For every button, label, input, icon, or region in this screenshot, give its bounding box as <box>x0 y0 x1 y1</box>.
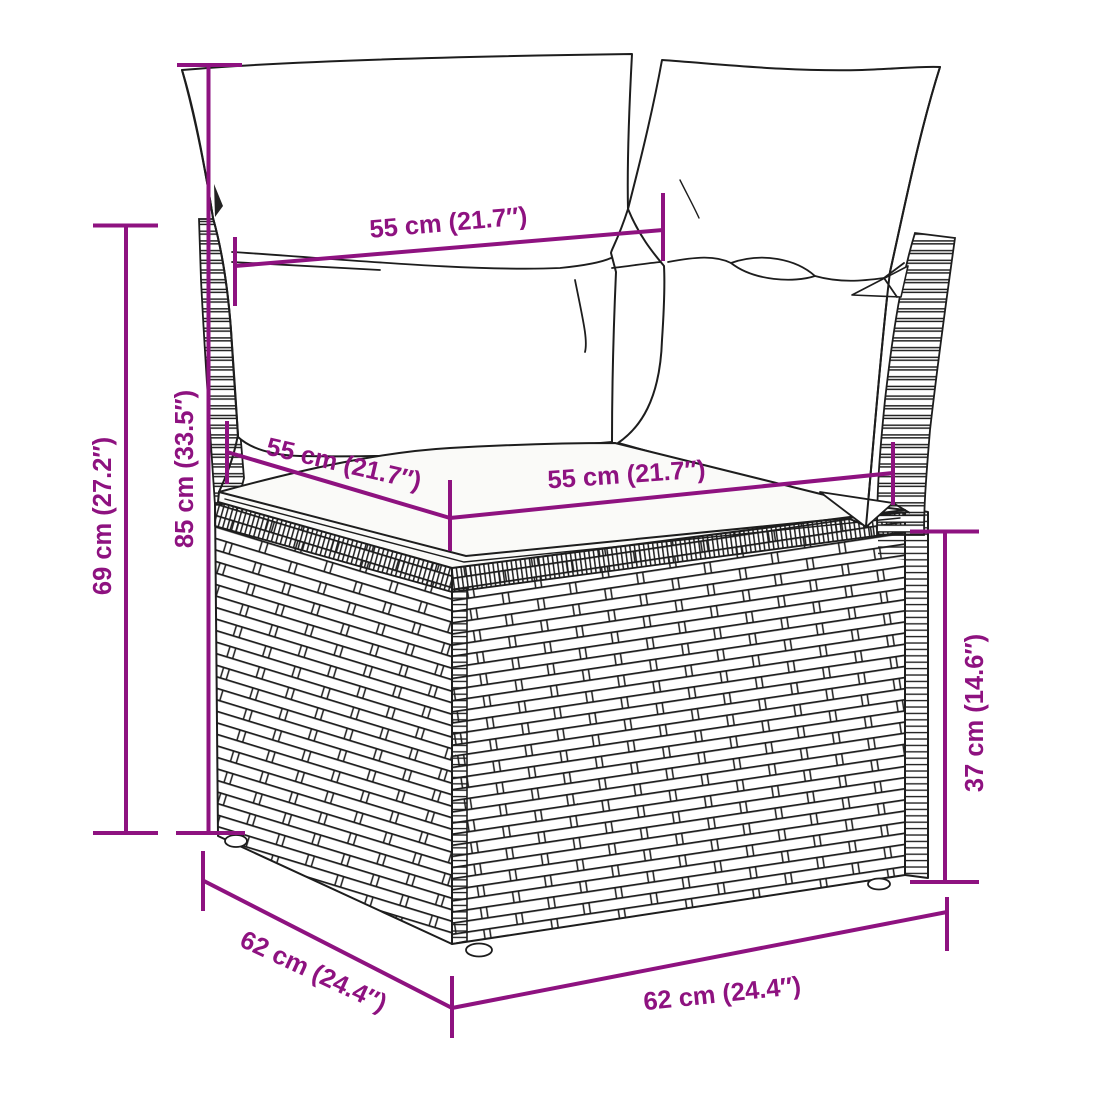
svg-text:85 cm (33.5″): 85 cm (33.5″) <box>171 390 199 548</box>
svg-text:69 cm (27.2″): 69 cm (27.2″) <box>89 437 117 595</box>
svg-text:37 cm (14.6″): 37 cm (14.6″) <box>961 634 989 792</box>
